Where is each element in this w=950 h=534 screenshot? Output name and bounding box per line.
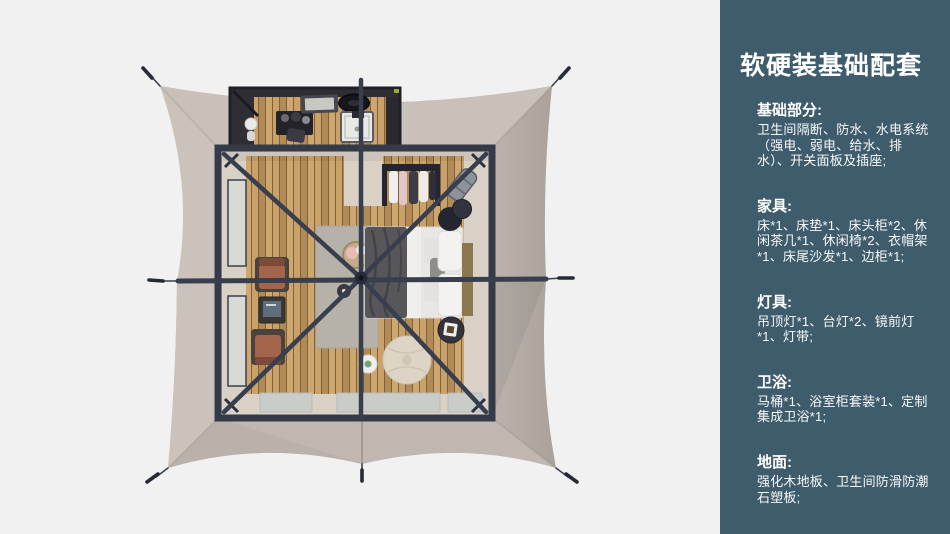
page-title: 软硬装基础配套 (740, 46, 934, 82)
entry-mats (260, 393, 482, 412)
bathroom-annex (230, 88, 400, 150)
section-heading: 灯具: (757, 294, 935, 312)
clothes-rack (382, 164, 440, 206)
window-left-upper (228, 180, 246, 266)
side-table (438, 317, 464, 343)
garment (419, 171, 428, 202)
section-heading: 基础部分: (757, 102, 935, 120)
garment (409, 171, 418, 204)
magazine-table (259, 297, 285, 323)
garment (429, 171, 436, 200)
door-mat (260, 393, 312, 412)
section-basics: 基础部分: 卫生间隔断、防水、水电系统（强电、弱电、给水、排水）、开关面板及插座… (757, 102, 935, 169)
window-left-lower (228, 296, 246, 386)
bathroom-counter (301, 94, 339, 113)
section-heading: 家具: (757, 198, 935, 216)
bathroom-wall-block (344, 156, 383, 206)
section-furniture: 家具: 床*1、床垫*1、床头柜*2、休闲茶几*1、休闲椅*2、衣帽架*1、床尾… (757, 198, 935, 265)
pillow-large (438, 231, 462, 271)
garment (389, 171, 398, 203)
section-bathroom: 卫浴: 马桶*1、浴室柜套装*1、定制集成卫浴*1; (757, 374, 935, 425)
shower-tray (341, 111, 373, 142)
door-mat (337, 393, 440, 412)
section-body: 床*1、床垫*1、床头柜*2、休闲茶几*1、休闲椅*2、衣帽架*1、床尾沙发*1… (757, 218, 935, 265)
bed (365, 227, 473, 318)
section-heading: 地面: (757, 454, 935, 472)
lounge-chair-upper (255, 257, 289, 292)
section-body: 吊顶灯*1、台灯*2、镜前灯*1、灯带; (757, 314, 935, 345)
section-lighting: 灯具: 吊顶灯*1、台灯*2、镜前灯*1、灯带; (757, 294, 935, 345)
roof-accent (394, 89, 399, 93)
vanity-stool (286, 128, 306, 143)
tent-top-view-render (0, 0, 720, 534)
section-heading: 卫浴: (757, 374, 935, 392)
info-sidebar: 软硬装基础配套 基础部分: 卫生间隔断、防水、水电系统（强电、弱电、给水、排水）… (720, 0, 950, 534)
stake-mid-left (149, 280, 163, 281)
section-body: 卫生间隔断、防水、水电系统（强电、弱电、给水、排水）、开关面板及插座; (757, 122, 935, 169)
sheet-fold (407, 227, 421, 318)
slide: 软硬装基础配套 基础部分: 卫生间隔断、防水、水电系统（强电、弱电、给水、排水）… (0, 0, 950, 534)
section-body: 马桶*1、浴室柜套装*1、定制集成卫浴*1; (757, 394, 935, 425)
section-flooring: 地面: 强化木地板、卫生间防滑防潮石塑板; (757, 454, 935, 505)
garment (399, 171, 407, 205)
section-body: 强化木地板、卫生间防滑防潮石塑板; (757, 474, 935, 505)
